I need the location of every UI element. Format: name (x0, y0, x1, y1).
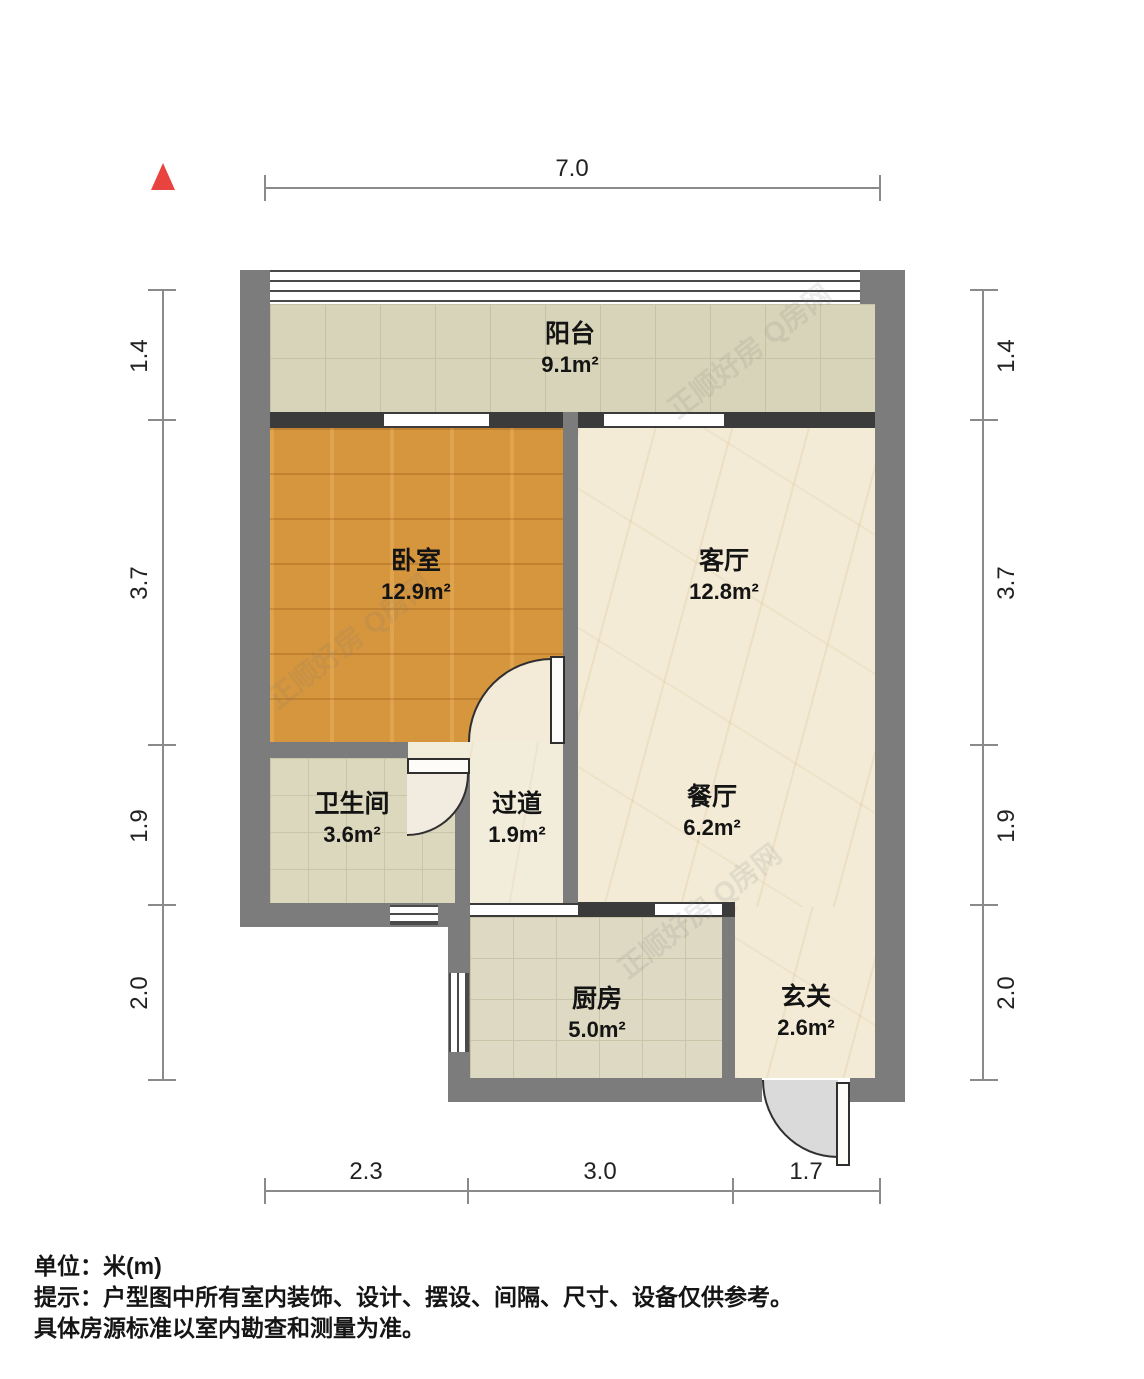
wall-bedroom-bottom (270, 742, 408, 758)
dimension-label-left: 1.9 (126, 786, 154, 866)
dimension-label-right: 2.0 (993, 953, 1021, 1033)
balcony-window (270, 270, 860, 304)
dimension-label-bottom: 1.7 (766, 1158, 846, 1186)
balcony-opening (604, 412, 724, 428)
floor-plan-canvas: 正顺好房 Q房网 正顺好房 Q房网 正顺好房 Q房网 阳台 9.1m² 卧室 1… (0, 0, 1144, 1379)
room-label-dining: 餐厅 6.2m² (622, 781, 802, 843)
kitchen-window (449, 973, 469, 1052)
room-label-balcony: 阳台 9.1m² (480, 318, 660, 380)
entry-door-swing (762, 1080, 838, 1158)
room-area: 6.2m² (622, 813, 802, 843)
room-label-living: 客厅 12.8m² (634, 545, 814, 607)
dimension-label-right: 1.4 (993, 316, 1021, 396)
room-label-hallway: 过道 1.9m² (427, 788, 607, 850)
dimension-tick (970, 744, 998, 746)
dimension-tick (970, 419, 998, 421)
dimension-tick (148, 289, 176, 291)
dimension-line-right (982, 290, 984, 1080)
dimension-line-top (265, 187, 880, 189)
dimension-tick (732, 1178, 734, 1204)
dimension-tick (879, 1178, 881, 1204)
dimension-tick (148, 1079, 176, 1081)
room-label-entry: 玄关 2.6m² (716, 981, 896, 1043)
dimension-tick (879, 175, 881, 201)
dimension-tick (148, 904, 176, 906)
dimension-tick (264, 1178, 266, 1204)
room-label-bathroom: 卫生间 3.6m² (262, 788, 442, 850)
room-name: 厨房 (507, 983, 687, 1015)
room-area: 9.1m² (480, 350, 660, 380)
room-area: 12.9m² (326, 577, 506, 607)
balcony-opening (384, 412, 489, 428)
wall-segment (724, 412, 875, 428)
dimension-label-bottom: 3.0 (560, 1158, 640, 1186)
room-area: 1.9m² (427, 820, 607, 850)
entry-door-leaf (836, 1082, 850, 1166)
wall-outer-right (875, 270, 905, 1102)
wall-segment (578, 412, 604, 428)
footer-disclaimer-1: 提示：户型图中所有室内装饰、设计、摆设、间隔、尺寸、设备仅供参考。 (34, 1278, 793, 1312)
wall-outer-bottom-left (448, 1078, 762, 1102)
dimension-label-top: 7.0 (532, 155, 612, 183)
wall-corner-top-right (860, 270, 905, 304)
dimension-label-left: 3.7 (126, 543, 154, 623)
room-area: 3.6m² (262, 820, 442, 850)
room-area: 5.0m² (507, 1015, 687, 1045)
room-name: 阳台 (480, 318, 660, 350)
room-name: 卫生间 (262, 788, 442, 820)
wall-outer-bottom-right (850, 1078, 905, 1102)
dimension-label-bottom: 2.3 (326, 1158, 406, 1186)
dimension-label-left: 1.4 (126, 316, 154, 396)
wall-kitchen-dining (578, 902, 655, 917)
dimension-line-bottom (265, 1190, 880, 1192)
room-area: 12.8m² (634, 577, 814, 607)
dimension-tick (148, 419, 176, 421)
wall-segment (489, 412, 563, 428)
dimension-label-right: 3.7 (993, 543, 1021, 623)
room-name: 餐厅 (622, 781, 802, 813)
bedroom-door-leaf (550, 656, 565, 744)
north-arrow-icon (151, 163, 175, 190)
room-area: 2.6m² (716, 1013, 896, 1043)
dimension-tick (970, 904, 998, 906)
dimension-tick (264, 175, 266, 201)
room-label-kitchen: 厨房 5.0m² (507, 983, 687, 1045)
bathroom-door-leaf (407, 758, 470, 774)
dimension-tick (148, 744, 176, 746)
footer-unit-note: 单位：米(m) (34, 1247, 162, 1281)
footer-disclaimer-2: 具体房源标准以室内勘查和测量为准。 (34, 1309, 425, 1343)
dimension-tick (970, 289, 998, 291)
dimension-label-right: 1.9 (993, 786, 1021, 866)
bathroom-window (390, 905, 438, 925)
kitchen-entrance-opening (470, 903, 578, 917)
room-name: 玄关 (716, 981, 896, 1013)
dimension-label-left: 2.0 (126, 953, 154, 1033)
room-label-bedroom: 卧室 12.9m² (326, 545, 506, 607)
room-name: 过道 (427, 788, 607, 820)
dimension-line-left (162, 290, 164, 1080)
wall-segment (270, 412, 384, 428)
room-name: 卧室 (326, 545, 506, 577)
room-name: 客厅 (634, 545, 814, 577)
dimension-tick (970, 1079, 998, 1081)
dimension-tick (467, 1178, 469, 1204)
